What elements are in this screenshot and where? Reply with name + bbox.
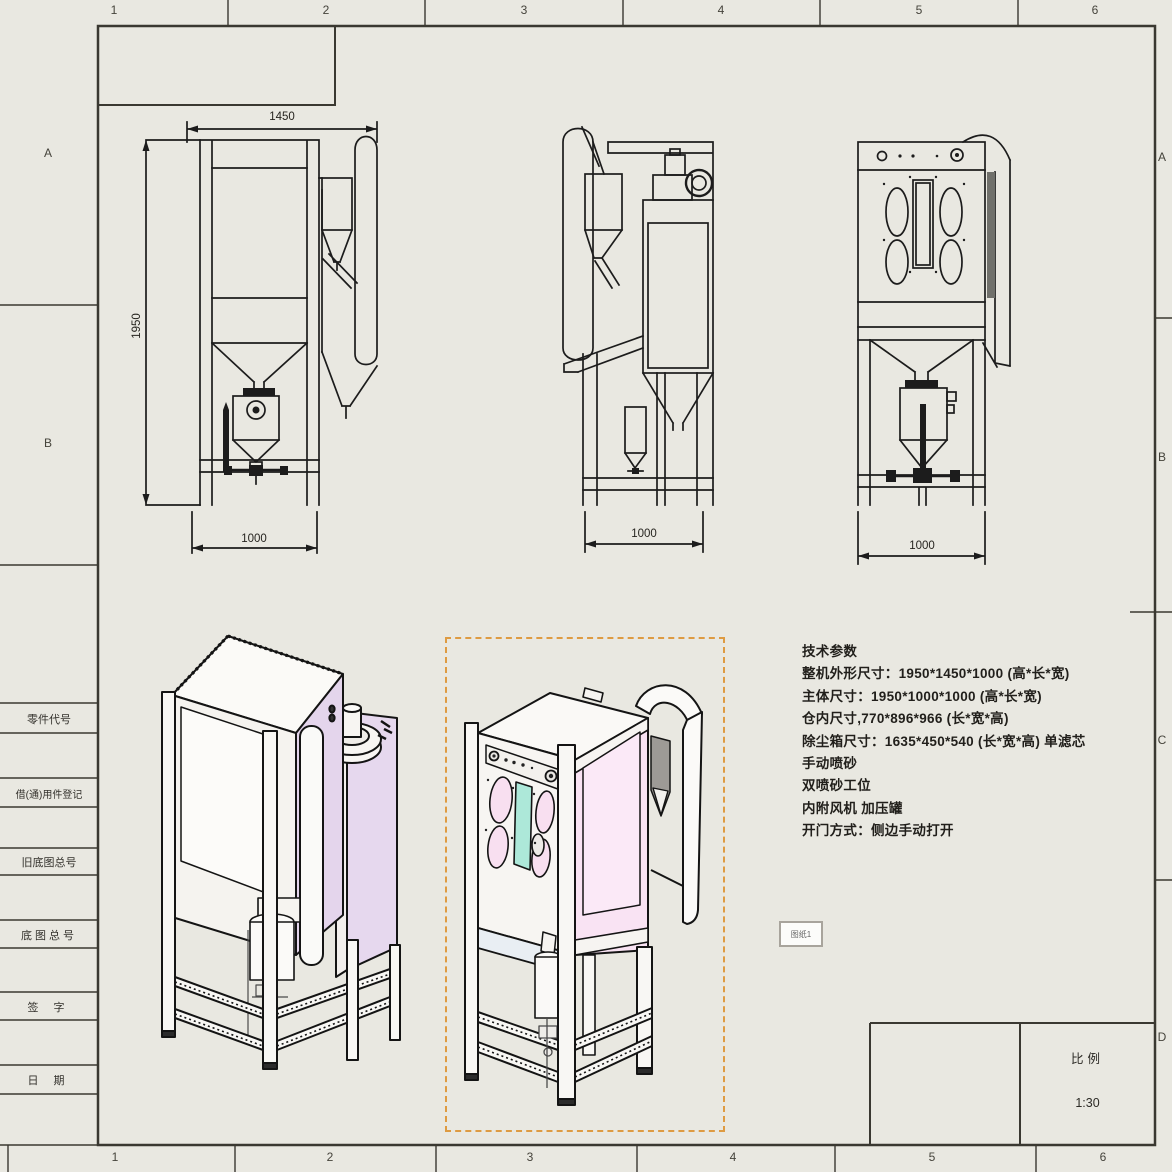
tech-params-line: 双喷砂工位: [802, 775, 1172, 797]
grid-row-label: D: [1150, 1030, 1172, 1044]
grid-col-label: 3: [512, 3, 536, 17]
titleblock-row-borrowed-parts: 借(通)用件登记: [0, 786, 98, 801]
dim-label-1000: 1000: [909, 540, 935, 552]
grid-col-label: 5: [920, 1150, 944, 1164]
grid-col-label: 2: [318, 1150, 342, 1164]
titleblock-row-date: 日 期: [0, 1072, 98, 1088]
rear-view-drawing: 1000: [552, 108, 728, 570]
drawing-tag: 图纸1: [779, 921, 823, 947]
tech-params-line: 仓内尺寸,770*896*966 (长*宽*高): [802, 708, 1172, 730]
titleblock-row-base-no: 底图总号: [0, 927, 98, 943]
scale-value: 1:30: [1020, 1096, 1155, 1110]
iso-view-selected[interactable]: [455, 660, 715, 1115]
grid-col-label: 6: [1091, 1150, 1115, 1164]
grid-row-label: A: [36, 146, 60, 160]
cad-drawing-page: { "sheet": { "background": "#e9e8e1", "b…: [0, 0, 1172, 1172]
grid-col-label: 6: [1083, 3, 1107, 17]
dim-label-1000: 1000: [631, 528, 657, 540]
front-view-drawing: 1000: [846, 108, 1052, 578]
tech-params-line: 技术参数: [802, 641, 1172, 663]
tech-params-line: 内附风机 加压罐: [802, 798, 1172, 820]
iso-view-colored: [148, 625, 418, 1075]
titleblock-row-old-base-no: 旧底图总号: [0, 854, 98, 870]
grid-row-label: B: [1150, 450, 1172, 464]
tech-params-line: 主体尺寸：1950*1000*1000 (高*长*宽): [802, 686, 1172, 708]
tech-params-line: 开门方式：侧边手动打开: [802, 820, 1172, 842]
side-view-drawing: 1450 1950 1000: [130, 104, 422, 572]
grid-row-label: A: [1150, 150, 1172, 164]
grid-col-label: 1: [103, 1150, 127, 1164]
dim-label-1000: 1000: [241, 533, 267, 545]
grid-col-label: 3: [518, 1150, 542, 1164]
grid-col-label: 1: [102, 3, 126, 17]
scale-label: 比例: [1020, 1048, 1155, 1067]
titleblock-row-signature: 签 字: [0, 999, 98, 1015]
tech-params-block: 技术参数 整机外形尺寸：1950*1450*1000 (高*长*宽) 主体尺寸：…: [802, 641, 1172, 843]
grid-col-label: 5: [907, 3, 931, 17]
tech-params-line: 手动喷砂: [802, 753, 1172, 775]
grid-col-label: 4: [721, 1150, 745, 1164]
tech-params-line: 除尘箱尺寸：1635*450*540 (长*宽*高) 单滤芯: [802, 731, 1172, 753]
grid-col-label: 2: [314, 3, 338, 17]
tech-params-line: 整机外形尺寸：1950*1450*1000 (高*长*宽): [802, 663, 1172, 685]
dim-label-1450: 1450: [269, 111, 295, 123]
grid-col-label: 4: [709, 3, 733, 17]
grid-row-label: B: [36, 436, 60, 450]
dim-label-1950: 1950: [131, 313, 143, 339]
titleblock-row-part-code: 零件代号: [0, 711, 98, 727]
